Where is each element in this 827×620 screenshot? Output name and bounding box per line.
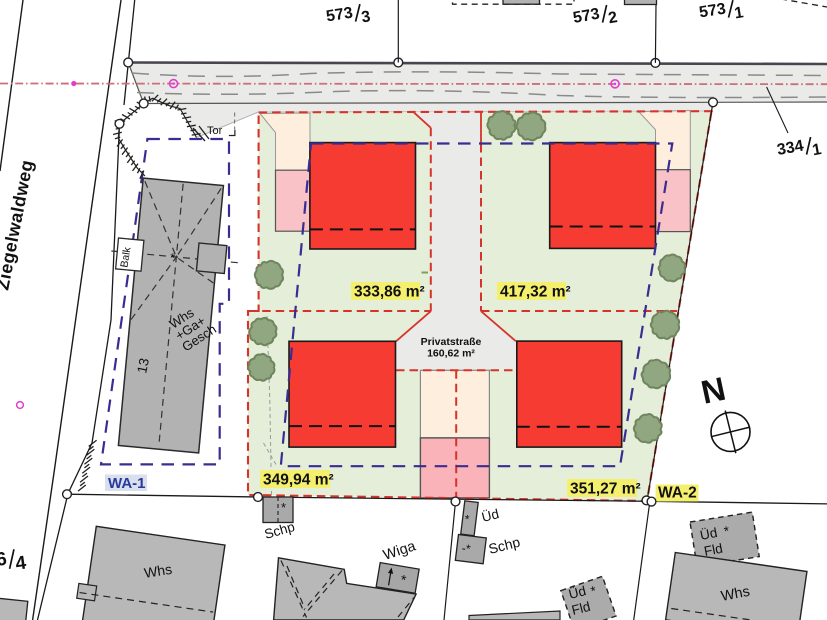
svg-text:WA-2: WA-2 <box>658 485 697 502</box>
svg-text:WA-1: WA-1 <box>108 475 146 492</box>
svg-text:417,32 m²: 417,32 m² <box>500 284 571 301</box>
svg-text:13: 13 <box>134 357 152 375</box>
svg-text:333,86 m²: 333,86 m² <box>354 284 425 301</box>
svg-text:Tor: Tor <box>207 125 223 137</box>
svg-text:351,27 m²: 351,27 m² <box>570 481 641 498</box>
svg-text:*: * <box>281 500 286 515</box>
svg-text:Privatstraße: Privatstraße <box>421 336 482 348</box>
svg-text:349,94 m²: 349,94 m² <box>263 472 334 489</box>
svg-text:160,62 m²: 160,62 m² <box>427 348 475 360</box>
